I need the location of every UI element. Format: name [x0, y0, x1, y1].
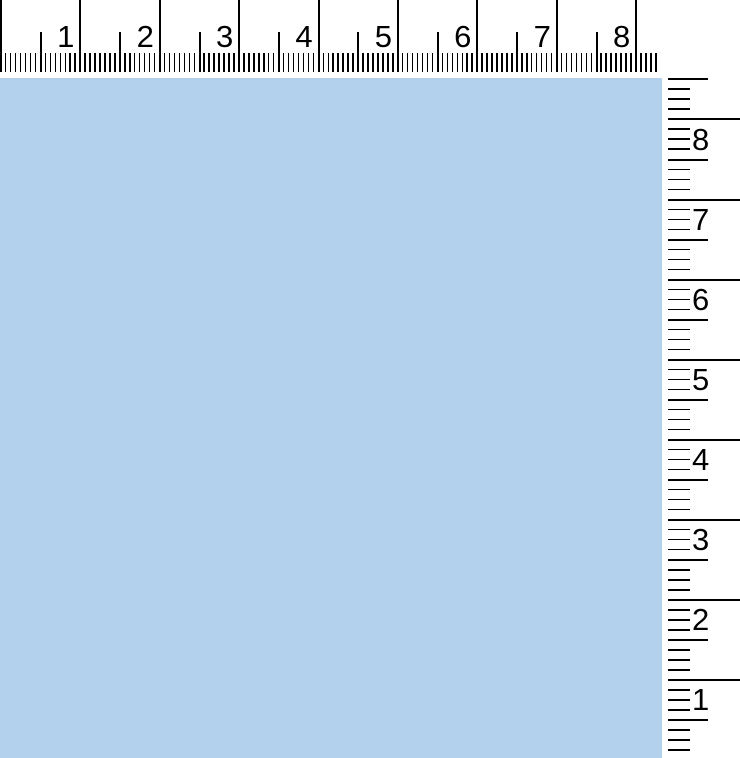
tick-minor — [561, 53, 563, 72]
tick-minor — [576, 53, 578, 72]
ruler-right-number-1: 1 — [692, 684, 709, 715]
tick-minor — [615, 53, 617, 72]
tick-major — [397, 0, 399, 72]
tick-minor — [668, 609, 690, 611]
tick-major — [476, 0, 478, 72]
tick-major — [0, 0, 2, 72]
tick-minor — [45, 53, 47, 72]
tick-minor — [427, 53, 429, 72]
tick-half — [668, 639, 708, 641]
tick-half — [668, 319, 708, 321]
tick-half — [119, 32, 121, 72]
tick-minor — [308, 53, 310, 72]
tick-minor — [60, 53, 62, 72]
tick-minor — [541, 53, 543, 72]
tick-minor — [668, 339, 690, 341]
ruler-top-number-3: 3 — [216, 21, 233, 52]
tick-minor — [109, 53, 111, 72]
app-window: 12345678 87654321 — [0, 0, 740, 758]
tick-half — [668, 479, 708, 481]
tick-minor — [35, 53, 37, 72]
tick-half — [668, 719, 708, 721]
tick-minor — [668, 229, 690, 231]
tick-minor — [668, 219, 690, 221]
tick-minor — [174, 53, 176, 72]
tick-minor — [481, 53, 483, 72]
tick-minor — [668, 589, 690, 591]
tick-minor — [442, 53, 444, 72]
tick-minor — [668, 689, 690, 691]
ruler-top-number-7: 7 — [534, 21, 551, 52]
tick-minor — [228, 53, 230, 72]
tick-minor — [668, 709, 690, 711]
tick-minor — [668, 649, 690, 651]
tick-minor — [536, 53, 538, 72]
tick-minor — [213, 53, 215, 72]
tick-minor — [104, 53, 106, 72]
tick-minor — [402, 53, 404, 72]
tick-minor — [288, 53, 290, 72]
tick-minor — [668, 429, 690, 431]
tick-minor — [462, 53, 464, 72]
tick-half — [668, 399, 708, 401]
tick-minor — [668, 259, 690, 261]
canvas[interactable] — [0, 78, 662, 758]
ruler-right-number-4: 4 — [692, 444, 709, 475]
tick-minor — [352, 53, 354, 72]
tick-minor — [30, 53, 32, 72]
tick-minor — [645, 53, 647, 72]
tick-minor — [377, 53, 379, 72]
tick-minor — [668, 329, 690, 331]
tick-minor — [668, 629, 690, 631]
tick-minor — [268, 53, 270, 72]
tick-minor — [668, 108, 690, 110]
tick-minor — [630, 53, 632, 72]
tick-minor — [668, 138, 690, 140]
tick-minor — [15, 53, 17, 72]
ruler-right-number-7: 7 — [692, 204, 709, 235]
tick-minor — [668, 189, 690, 191]
tick-half — [199, 32, 201, 72]
tick-minor — [323, 53, 325, 72]
tick-half — [437, 32, 439, 72]
tick-minor — [625, 53, 627, 72]
tick-major — [668, 679, 740, 681]
tick-minor — [526, 53, 528, 72]
tick-minor — [273, 53, 275, 72]
tick-minor — [650, 53, 652, 72]
tick-half — [668, 159, 708, 161]
tick-minor — [114, 53, 116, 72]
tick-minor — [471, 53, 473, 72]
tick-minor — [392, 53, 394, 72]
tick-minor — [591, 53, 593, 72]
tick-half — [668, 239, 708, 241]
tick-minor — [50, 53, 52, 72]
tick-minor — [412, 53, 414, 72]
ruler-right-number-6: 6 — [692, 284, 709, 315]
tick-minor — [10, 53, 12, 72]
tick-minor — [164, 53, 166, 72]
tick-minor — [620, 53, 622, 72]
tick-minor — [69, 53, 71, 72]
ruler-top-number-6: 6 — [454, 21, 471, 52]
tick-minor — [337, 53, 339, 72]
tick-half — [278, 32, 280, 72]
tick-minor — [668, 369, 690, 371]
tick-minor — [668, 389, 690, 391]
tick-minor — [74, 53, 76, 72]
tick-minor — [566, 53, 568, 72]
tick-minor — [511, 53, 513, 72]
tick-minor — [194, 53, 196, 72]
tick-minor — [258, 53, 260, 72]
tick-minor — [263, 53, 265, 72]
tick-minor — [605, 53, 607, 72]
tick-minor — [668, 739, 690, 741]
tick-minor — [506, 53, 508, 72]
tick-minor — [184, 53, 186, 72]
tick-minor — [668, 409, 690, 411]
tick-minor — [668, 489, 690, 491]
tick-minor — [382, 53, 384, 72]
tick-minor — [668, 459, 690, 461]
tick-minor — [551, 53, 553, 72]
tick-minor — [417, 53, 419, 72]
tick-minor — [447, 53, 449, 72]
tick-minor — [668, 499, 690, 501]
tick-major — [668, 199, 740, 201]
tick-minor — [233, 53, 235, 72]
tick-minor — [668, 449, 690, 451]
tick-minor — [466, 53, 468, 72]
tick-minor — [668, 529, 690, 531]
tick-minor — [610, 53, 612, 72]
tick-half — [516, 32, 518, 72]
tick-minor — [65, 53, 67, 72]
tick-minor — [452, 53, 454, 72]
tick-major — [318, 0, 320, 72]
tick-major — [556, 0, 558, 72]
tick-minor — [668, 209, 690, 211]
tick-minor — [668, 539, 690, 541]
tick-minor — [640, 53, 642, 72]
tick-minor — [571, 53, 573, 72]
tick-minor — [668, 669, 690, 671]
tick-minor — [668, 569, 690, 571]
tick-half — [357, 32, 359, 72]
tick-major — [238, 0, 240, 72]
ruler-top-number-4: 4 — [295, 21, 312, 52]
tick-minor — [55, 53, 57, 72]
tick-minor — [293, 53, 295, 72]
tick-minor — [668, 148, 690, 150]
tick-minor — [313, 53, 315, 72]
tick-minor — [89, 53, 91, 72]
ruler-right-number-5: 5 — [692, 364, 709, 395]
tick-minor — [154, 53, 156, 72]
ruler-right-number-2: 2 — [692, 604, 709, 635]
tick-minor — [496, 53, 498, 72]
tick-minor — [501, 53, 503, 72]
tick-minor — [655, 53, 657, 72]
tick-minor — [124, 53, 126, 72]
tick-minor — [387, 53, 389, 72]
tick-minor — [668, 299, 690, 301]
tick-minor — [99, 53, 101, 72]
tick-minor — [668, 88, 690, 90]
ruler-right-number-3: 3 — [692, 524, 709, 555]
tick-major — [159, 0, 161, 72]
ruler-horizontal: 12345678 — [0, 0, 661, 77]
tick-minor — [668, 269, 690, 271]
tick-minor — [298, 53, 300, 72]
tick-minor — [668, 249, 690, 251]
tick-minor — [668, 179, 690, 181]
tick-minor — [332, 53, 334, 72]
tick-minor — [457, 53, 459, 72]
tick-minor — [668, 659, 690, 661]
tick-major — [668, 118, 740, 120]
tick-minor — [362, 53, 364, 72]
tick-minor — [134, 53, 136, 72]
tick-minor — [144, 53, 146, 72]
tick-minor — [253, 53, 255, 72]
tick-minor — [586, 53, 588, 72]
ruler-top-number-8: 8 — [613, 21, 630, 52]
tick-major — [668, 519, 740, 521]
tick-major — [635, 0, 637, 72]
tick-minor — [668, 349, 690, 351]
tick-minor — [139, 53, 141, 72]
tick-minor — [84, 53, 86, 72]
tick-minor — [668, 509, 690, 511]
tick-minor — [668, 729, 690, 731]
tick-minor — [328, 53, 330, 72]
tick-minor — [668, 749, 690, 751]
tick-minor — [283, 53, 285, 72]
tick-minor — [521, 53, 523, 72]
tick-minor — [668, 169, 690, 171]
tick-major — [668, 599, 740, 601]
tick-minor — [367, 53, 369, 72]
tick-minor — [223, 53, 225, 72]
tick-minor — [129, 53, 131, 72]
tick-minor — [668, 579, 690, 581]
tick-minor — [25, 53, 27, 72]
tick-minor — [668, 289, 690, 291]
tick-minor — [407, 53, 409, 72]
tick-minor — [248, 53, 250, 72]
tick-half — [668, 78, 708, 80]
ruler-vertical: 87654321 — [662, 78, 740, 758]
tick-minor — [486, 53, 488, 72]
tick-minor — [432, 53, 434, 72]
tick-minor — [546, 53, 548, 72]
tick-minor — [208, 53, 210, 72]
tick-minor — [668, 549, 690, 551]
tick-half — [668, 559, 708, 561]
tick-half — [40, 32, 42, 72]
tick-minor — [668, 699, 690, 701]
tick-minor — [422, 53, 424, 72]
tick-minor — [491, 53, 493, 72]
tick-minor — [218, 53, 220, 72]
tick-minor — [179, 53, 181, 72]
tick-minor — [668, 419, 690, 421]
tick-major — [668, 439, 740, 441]
tick-minor — [531, 53, 533, 72]
tick-minor — [668, 98, 690, 100]
tick-minor — [5, 53, 7, 72]
tick-minor — [303, 53, 305, 72]
tick-minor — [203, 53, 205, 72]
ruler-top-number-2: 2 — [137, 21, 154, 52]
tick-minor — [668, 309, 690, 311]
tick-minor — [243, 53, 245, 72]
tick-minor — [668, 128, 690, 130]
tick-minor — [169, 53, 171, 72]
tick-minor — [342, 53, 344, 72]
tick-minor — [149, 53, 151, 72]
ruler-top-number-1: 1 — [57, 21, 74, 52]
tick-minor — [668, 619, 690, 621]
tick-major — [668, 279, 740, 281]
tick-half — [596, 32, 598, 72]
tick-minor — [20, 53, 22, 72]
ruler-top-number-5: 5 — [375, 21, 392, 52]
tick-minor — [668, 469, 690, 471]
tick-minor — [600, 53, 602, 72]
tick-minor — [581, 53, 583, 72]
tick-major — [668, 359, 740, 361]
tick-minor — [372, 53, 374, 72]
tick-major — [79, 0, 81, 72]
tick-minor — [668, 379, 690, 381]
tick-minor — [347, 53, 349, 72]
ruler-right-number-8: 8 — [692, 124, 709, 155]
tick-minor — [94, 53, 96, 72]
tick-minor — [189, 53, 191, 72]
